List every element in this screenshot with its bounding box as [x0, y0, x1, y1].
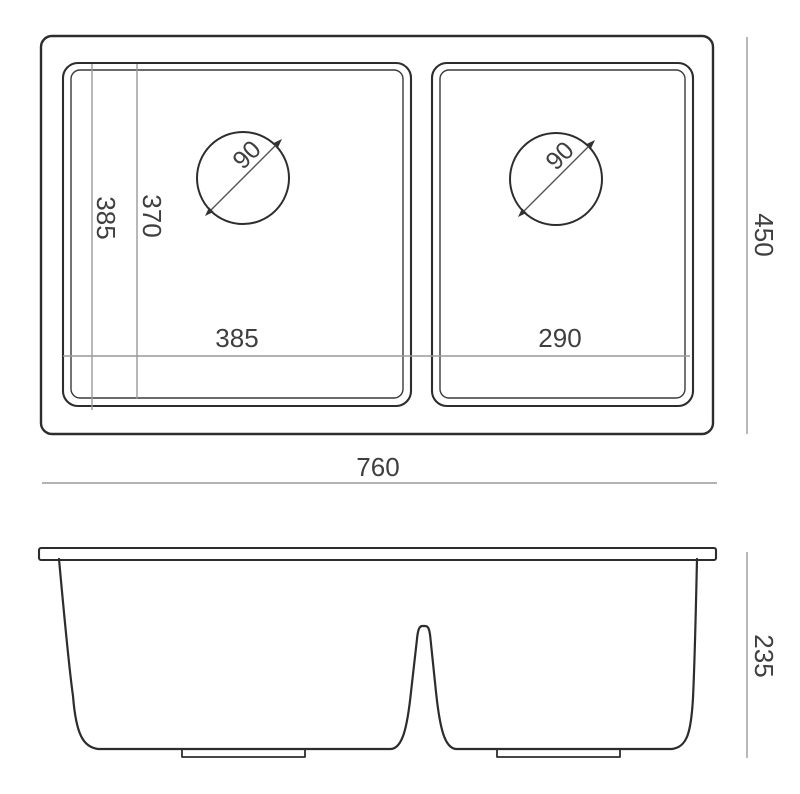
dim-label-overall-width: 760	[356, 452, 399, 482]
sink-dimension-drawing: 90 90 385 370 385 290 450 760	[0, 0, 800, 794]
dim-label-overall-height: 235	[749, 634, 779, 677]
right-bowl-outline	[432, 63, 693, 406]
left-drain-diameter-label: 90	[227, 135, 266, 174]
side-body-outline	[59, 559, 697, 749]
side-view: 235	[39, 548, 779, 758]
side-foot-pad-right	[497, 749, 620, 757]
right-drain-diameter-label: 90	[540, 136, 579, 175]
dim-label-left-bowl-width: 385	[215, 323, 258, 353]
dim-label-left-bowl-inner-depth: 370	[137, 194, 167, 237]
dim-label-left-bowl-depth: 385	[91, 196, 121, 239]
dim-label-overall-depth: 450	[749, 213, 779, 256]
top-view: 90 90 385 370 385 290 450 760	[41, 36, 779, 483]
side-foot-pad-left	[182, 749, 305, 757]
technical-drawing-canvas: 90 90 385 370 385 290 450 760	[0, 0, 800, 794]
side-rim-outline	[39, 548, 716, 560]
dim-label-right-bowl-width: 290	[538, 323, 581, 353]
